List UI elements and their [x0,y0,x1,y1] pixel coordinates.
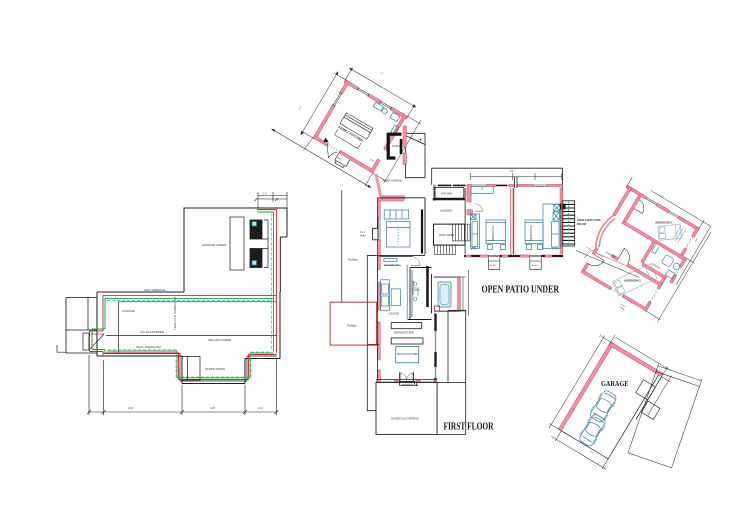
svg-text:REAR LANDING: REAR LANDING [383,179,402,183]
svg-text:LANDING: LANDING [440,209,452,213]
svg-text:WALK IN KITCHEN: WALK IN KITCHEN [397,353,418,356]
svg-text:STEPS DOWN: STEPS DOWN [205,367,225,371]
svg-text:BATHROOM: BATHROOM [412,281,415,295]
svg-text:GARAGE: GARAGE [601,379,629,388]
svg-text:4.80: 4.80 [128,407,133,410]
svg-text:BEDROOM 3: BEDROOM 3 [656,221,673,225]
svg-text:LOUNGE: LOUNGE [122,309,135,313]
svg-text:3.95: 3.95 [210,407,215,410]
svg-text:KITCHEN: KITCHEN [441,192,453,196]
svg-text:BREAKFAST BAR: BREAKFAST BAR [394,332,414,335]
svg-text:BEDROOM 2: BEDROOM 2 [529,225,533,241]
svg-text:Wdw: Wdw [360,234,366,237]
svg-text:FIRST FLOOR: FIRST FLOOR [444,421,495,433]
svg-text:OPEN PATIO UNDER: OPEN PATIO UNDER [482,285,560,296]
svg-text:WALL DINING RM: WALL DINING RM [136,345,161,349]
svg-text:OPEN COURTYARD: OPEN COURTYARD [577,219,601,222]
svg-text:BELOW: BELOW [577,223,587,226]
svg-text:BEDROOM 1: BEDROOM 1 [491,225,495,241]
svg-text:W 4x1: W 4x1 [490,265,497,267]
svg-text:ALL PLASTERED: ALL PLASTERED [140,330,165,334]
svg-text:BEDROOM 2: BEDROOM 2 [625,278,642,282]
svg-text:Rooflight: Rooflight [348,259,358,262]
svg-text:PORCH: PORCH [392,144,401,148]
svg-text:Rooflight: Rooflight [347,325,357,328]
svg-text:SUN TERRACE: SUN TERRACE [144,288,165,292]
svg-text:GARAGE UNDER: GARAGE UNDER [202,243,227,247]
svg-text:W 4x1: W 4x1 [532,265,539,267]
svg-text:2.10: 2.10 [258,407,263,410]
svg-text:LOUNGE: LOUNGE [388,312,399,316]
svg-text:TILED FLR SURROUND: TILED FLR SURROUND [173,296,177,330]
svg-text:SHADED SUN TERRACE: SHADED SUN TERRACE [391,418,419,421]
svg-text:CELLAR UNDER: CELLAR UNDER [208,338,232,342]
